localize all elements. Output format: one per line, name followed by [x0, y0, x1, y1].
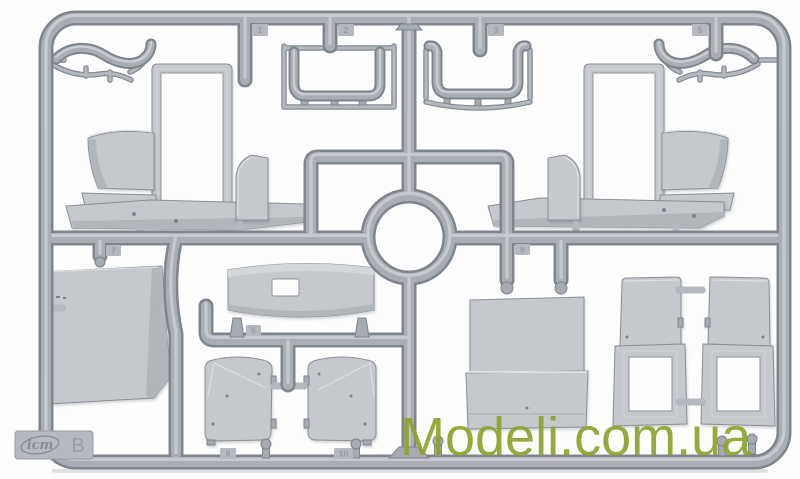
icm-logo-text: icm	[27, 438, 54, 453]
door-panel-right	[304, 357, 376, 445]
part-tag-9-label: 9	[226, 449, 231, 459]
window-door-right	[701, 277, 775, 426]
cab-cowl-strip-right	[548, 155, 580, 220]
rear-cab-panel-part6	[228, 263, 374, 317]
roof-panel-part7	[40, 266, 170, 404]
sprue-photo: 1 2 3 5 6 7 8 9 10 icm B Modeli.com.ua	[0, 0, 800, 479]
cab-floor-panel-left	[66, 200, 306, 230]
sprue-scene: 1 2 3 5 6 7 8 9 10 icm B Modeli.com.ua	[0, 0, 800, 479]
cab-fender-panel-right	[660, 130, 734, 212]
door-frame-left	[152, 64, 232, 220]
part-tag-2-label: 2	[344, 25, 349, 35]
door-frame-right	[584, 64, 664, 220]
watermark-text: Modeli.com.ua	[400, 407, 752, 467]
part-tag-3-label: 3	[494, 25, 499, 35]
door-window-opening-right	[717, 357, 760, 411]
part-tag-5-label: 5	[698, 25, 703, 35]
rear-window-opening	[272, 279, 299, 296]
part-tag-1-label: 1	[258, 25, 263, 35]
part-tag-7-label: 7	[111, 246, 116, 256]
cab-fender-panel-left	[82, 130, 156, 212]
sprue-letter: B	[71, 435, 84, 457]
brand-tab: icm B	[15, 431, 93, 459]
window-door-left	[613, 277, 687, 426]
door-panel-left	[205, 357, 276, 445]
part-tag-10-label: 10	[339, 449, 349, 459]
cab-floor-panel-right	[488, 198, 724, 228]
cab-cowl-strip-left	[236, 155, 268, 220]
sprue-shadow	[52, 469, 768, 473]
part-tag-8-label: 8	[520, 245, 525, 255]
part-tag-6-label: 6	[251, 326, 256, 336]
door-window-opening-left	[629, 357, 672, 411]
